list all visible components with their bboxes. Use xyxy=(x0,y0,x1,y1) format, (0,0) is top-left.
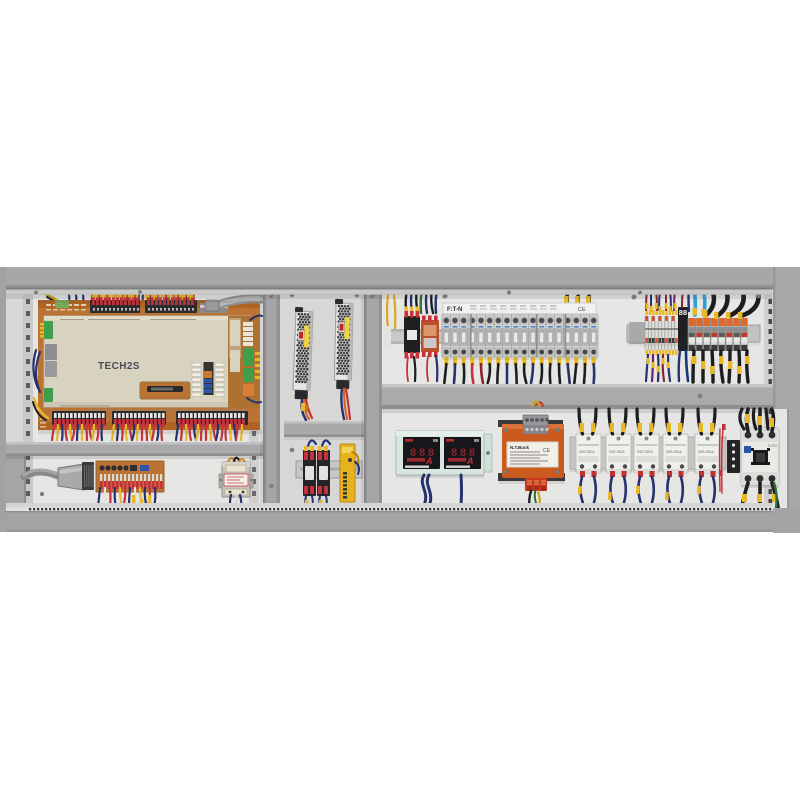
svg-text:A: A xyxy=(466,456,474,466)
svg-text:CE: CE xyxy=(578,307,586,313)
svg-text:SSR-25DA: SSR-25DA xyxy=(609,450,625,454)
svg-text:CE: CE xyxy=(543,448,551,454)
svg-text:SSR-25DA: SSR-25DA xyxy=(579,450,595,454)
svg-text:8: 8 xyxy=(460,447,466,459)
svg-text:SSR-25DA: SSR-25DA xyxy=(637,450,653,454)
svg-text:8: 8 xyxy=(419,447,425,459)
svg-text:TECH2S: TECH2S xyxy=(98,361,140,372)
svg-text:A: A xyxy=(425,456,433,466)
svg-text:SSR-25DA: SSR-25DA xyxy=(698,450,714,454)
svg-text:SSR-25DA: SSR-25DA xyxy=(666,450,682,454)
svg-text:S-P21: S-P21 xyxy=(768,444,777,448)
svg-text:F:T-N: F:T-N xyxy=(447,307,462,313)
svg-text:8: 8 xyxy=(410,447,416,459)
svg-text:8: 8 xyxy=(451,447,457,459)
svg-text:N.T.Buck: N.T.Buck xyxy=(510,445,530,450)
svg-text:88: 88 xyxy=(679,308,687,317)
